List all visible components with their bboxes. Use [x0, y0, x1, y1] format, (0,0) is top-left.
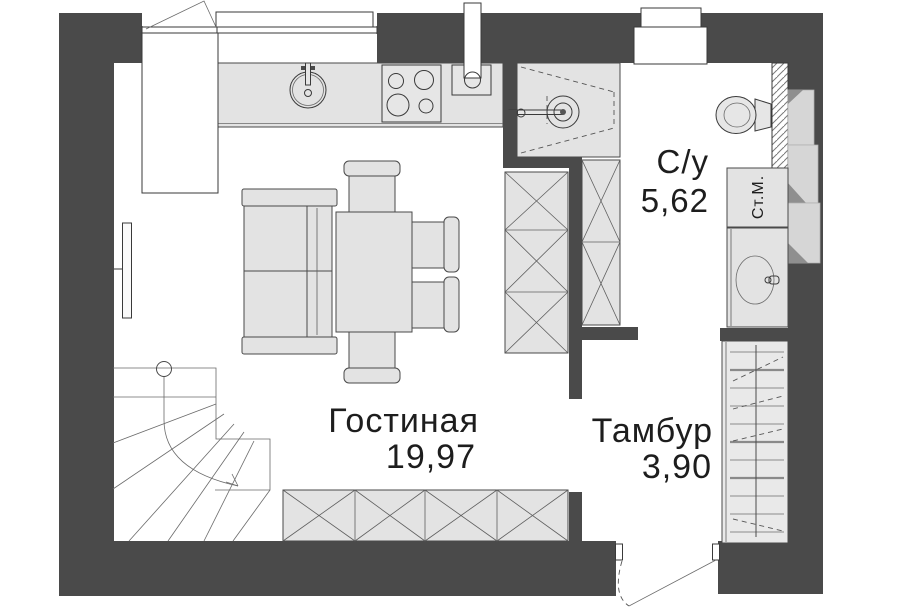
room-area-vestibule: 3,90: [642, 448, 712, 486]
sink-faucet: [306, 63, 311, 85]
wall-left: [59, 13, 114, 596]
wall-bottom-left: [59, 541, 616, 596]
toilet-tank: [755, 99, 771, 131]
winder-newel: [157, 362, 172, 377]
chair-right-1-back: [444, 217, 459, 272]
sofa: [242, 189, 337, 354]
washing-machine-label: Ст.М.: [750, 175, 767, 219]
winder-stairs: [113, 362, 270, 542]
chair-top-back: [344, 161, 400, 176]
door-swing-arc: [618, 561, 629, 606]
dining-set: [336, 161, 459, 383]
dining-table: [336, 212, 412, 332]
bathroom-window-outer: [641, 8, 701, 27]
wardrobe-left-column: [505, 172, 568, 353]
bathroom-window: [634, 8, 707, 64]
wall-partition-lower: [569, 492, 582, 543]
shower: [503, 63, 620, 157]
wardrobe-bottom: [283, 490, 568, 541]
floor-plan-svg: Ст.М.: [0, 0, 900, 609]
kitchen-window-casement: [216, 12, 373, 27]
washbasin: [727, 228, 788, 327]
wall-bath-south-east: [720, 328, 790, 341]
wall-bath-south-west: [578, 327, 638, 340]
sofa-seat: [244, 206, 307, 271]
room-label-bathroom: С/у: [657, 143, 710, 180]
sofa-armrest: [242, 189, 337, 206]
vent-duct: [772, 63, 788, 168]
sofa-backrest: [307, 271, 332, 337]
washing-machine: Ст.М.: [727, 168, 788, 227]
cooktop: [382, 65, 441, 122]
room-label-vestibule: Тамбур: [592, 412, 713, 450]
tv-body: [123, 223, 132, 318]
chair-bottom-back: [344, 368, 400, 383]
room-area-bathroom: 5,62: [641, 182, 709, 219]
sofa-seat: [244, 271, 307, 337]
floor-plan: Ст.М.: [0, 0, 900, 609]
door-jamb: [616, 544, 623, 560]
staircase: [722, 341, 788, 543]
wall-bottom-right: [718, 541, 823, 594]
wardrobe-bathroom-column: [582, 160, 620, 325]
sofa-armrest: [242, 337, 337, 354]
sofa-backrest: [307, 206, 332, 271]
room-area-living: 19,97: [386, 438, 476, 476]
toilet: [716, 97, 771, 134]
chair-right-1-seat: [412, 222, 449, 268]
chair-right-2-back: [444, 277, 459, 332]
kitchen-cabinet-box: [142, 33, 218, 193]
tv: [114, 223, 132, 318]
living-room: [113, 160, 620, 541]
chair-right-2-seat: [412, 282, 449, 328]
door-leaf: [629, 560, 716, 606]
entrance-door: [616, 544, 720, 606]
bathroom-window-sill: [634, 27, 707, 64]
door-jamb: [713, 544, 720, 560]
flue-pipe: [464, 3, 481, 78]
room-label-living: Гостиная: [328, 402, 479, 440]
wall-partition-upper: [569, 150, 582, 399]
